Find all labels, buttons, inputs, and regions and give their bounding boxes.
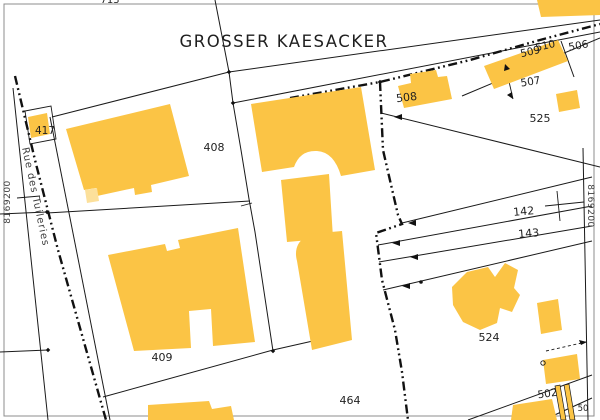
- building-parcel-525: [556, 90, 580, 112]
- parcel-label-713: 713: [100, 0, 119, 6]
- street-left-edge: [13, 88, 48, 420]
- building-arch: [251, 87, 375, 176]
- boundary-arrow: [410, 254, 418, 260]
- boundary-vertical: [376, 82, 408, 420]
- building-center-mid: [281, 174, 333, 242]
- point-marker: [419, 280, 423, 284]
- boundary-arrow: [402, 283, 410, 289]
- dimension-arrow-down: [507, 92, 513, 99]
- dashed-line-arrow: [579, 340, 587, 345]
- boundary-arrow: [392, 240, 400, 246]
- building-parcel-524: [452, 263, 520, 330]
- building-annex-light: [85, 188, 99, 203]
- parcel-525-south-line: [381, 113, 600, 167]
- parcel-142-top-line: [402, 177, 592, 223]
- parcel-label-417: 417: [35, 125, 55, 137]
- parcel-408-top-line: [52, 72, 229, 117]
- boundary-arrow: [394, 114, 402, 120]
- map-title: GROSSER KAESACKER: [179, 32, 388, 51]
- building-parcel-408: [66, 104, 189, 196]
- parcel-label-502: 502: [537, 387, 559, 402]
- parcel-label-524: 524: [479, 331, 500, 344]
- building-center-tall: [296, 231, 352, 350]
- node-marker: [231, 101, 236, 106]
- parcel-label-507: 507: [520, 75, 542, 90]
- dashed-link-line: [546, 342, 586, 351]
- parcel-label-506: 506: [568, 38, 590, 53]
- parcel-label-143: 143: [518, 226, 540, 241]
- parcel-label-409: 409: [152, 351, 173, 364]
- parcel-408-409-divider: [47, 201, 250, 213]
- wall-strip-east: [564, 384, 575, 420]
- grid-cross-vertical: [557, 191, 560, 221]
- node-marker: [227, 70, 232, 75]
- grid-coordinate-right: 8169200: [585, 184, 595, 228]
- parcel-label-464: 464: [340, 394, 361, 407]
- building-small-rect-524: [537, 299, 562, 334]
- grid-cross-horizontal: [545, 202, 584, 206]
- building: [537, 0, 600, 17]
- parcel-142-143-divider: [378, 206, 592, 245]
- parcel-label-142: 142: [513, 204, 535, 219]
- node-marker: [46, 348, 51, 353]
- parcel-label-525: 525: [530, 112, 551, 125]
- parcel-label-50: 50: [578, 404, 589, 414]
- building-parcel-409: [108, 228, 255, 351]
- building-bottom-left-partial: [148, 401, 234, 420]
- grid-coordinate-left: 8169200: [3, 180, 13, 224]
- parcel-label-408: 408: [204, 141, 225, 154]
- parcel-label-508: 508: [395, 90, 417, 105]
- building-parcel-502: [543, 354, 580, 384]
- parcel-143-bottom-line: [379, 226, 592, 262]
- cadastral-map: GROSSER KAESACKER Rue des Tuileries 8169…: [0, 0, 600, 420]
